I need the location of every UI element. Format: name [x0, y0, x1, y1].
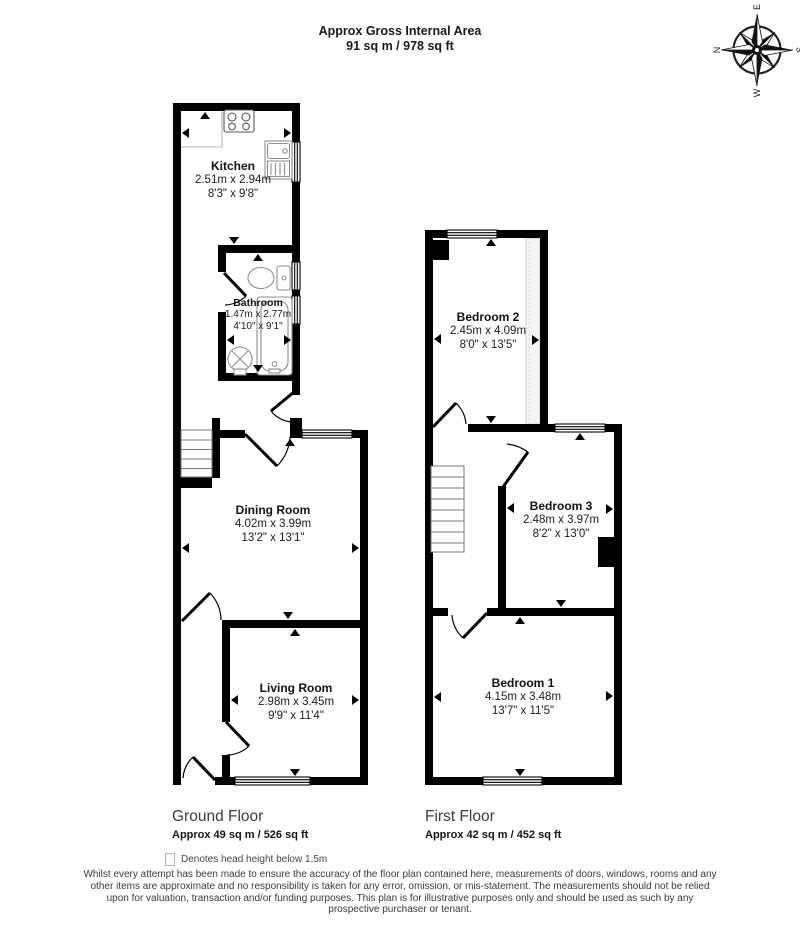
- hob-icon: [224, 110, 254, 132]
- first-floor-title: First Floor: [425, 808, 495, 826]
- room-name: Bedroom 1: [485, 676, 561, 690]
- room-imperial: 8'2" x 13'0": [523, 527, 599, 541]
- bedroom1-window: [483, 777, 542, 785]
- room-imperial: 8'0" x 13'5": [450, 338, 526, 352]
- room-metric: 2.51m x 2.94m: [195, 173, 271, 187]
- head-height-legend: Denotes head height below 1.5m: [165, 853, 327, 866]
- dining-room-window: [302, 430, 352, 438]
- room-metric: 2.98m x 3.45m: [258, 695, 334, 709]
- compass-north-label: N: [712, 47, 722, 54]
- room-metric: 2.48m x 3.97m: [523, 513, 599, 527]
- bedroom2-chimney: [433, 240, 449, 260]
- first-floor-stairs: [431, 466, 464, 552]
- bedroom1-door: [452, 613, 487, 638]
- room-imperial: 13'7" x 11'5": [485, 704, 561, 718]
- ground-floor-area: Approx 49 sq m / 526 sq ft: [172, 829, 308, 841]
- room-label-bedroom-3: Bedroom 3 2.48m x 3.97m 8'2" x 13'0": [523, 499, 599, 541]
- living-room-window: [235, 777, 310, 785]
- compass-south-label: S: [795, 47, 800, 53]
- ground-floor-title: Ground Floor: [172, 808, 263, 826]
- room-metric: 1.47m x 2.77m: [225, 309, 291, 321]
- bedroom2-window: [447, 230, 497, 238]
- floorplan-page: Approx Gross Internal Area 91 sq m / 978…: [0, 0, 800, 927]
- hall-dining-door: [182, 593, 221, 621]
- ground-floor-stairs: [181, 430, 212, 477]
- bedroom3-window: [555, 424, 605, 432]
- room-label-kitchen: Kitchen 2.51m x 2.94m 8'3" x 9'8": [195, 159, 271, 201]
- basin-icon: [228, 347, 252, 375]
- room-label-living-room: Living Room 2.98m x 3.45m 9'9" x 11'4": [258, 681, 334, 723]
- room-label-bedroom-2: Bedroom 2 2.45m x 4.09m 8'0" x 13'5": [450, 310, 526, 352]
- compass-west-label: W: [752, 88, 762, 97]
- disclaimer-text: Whilst every attempt has been made to en…: [80, 869, 720, 916]
- room-label-dining-room: Dining Room 4.02m x 3.99m 13'2" x 13'1": [235, 503, 311, 545]
- dining-room-door: [245, 434, 290, 466]
- room-imperial: 8'3" x 9'8": [195, 187, 271, 201]
- room-name: Bathroom: [225, 297, 291, 309]
- compass-east-label: E: [752, 4, 762, 10]
- living-room-door: [226, 722, 249, 755]
- head-height-legend-text: Denotes head height below 1.5m: [181, 854, 327, 865]
- toilet-icon: [248, 266, 290, 290]
- head-height-swatch-icon: [165, 853, 175, 866]
- room-metric: 4.02m x 3.99m: [235, 517, 311, 531]
- front-door: [183, 757, 215, 780]
- bedroom2-door: [433, 403, 466, 427]
- room-metric: 4.15m x 3.48m: [485, 690, 561, 704]
- landing-door: [271, 392, 294, 422]
- bedroom3-chimney: [598, 537, 614, 567]
- room-name: Bedroom 2: [450, 310, 526, 324]
- bedroom3-door: [503, 444, 528, 487]
- room-imperial: 9'9" x 11'4": [258, 709, 334, 723]
- compass-rose-icon: N E S W: [712, 4, 800, 97]
- room-name: Bedroom 3: [523, 499, 599, 513]
- floorplan-drawing: N E S W: [0, 0, 800, 927]
- room-label-bedroom-1: Bedroom 1 4.15m x 3.48m 13'7" x 11'5": [485, 676, 561, 718]
- room-name: Kitchen: [195, 159, 271, 173]
- room-name: Living Room: [258, 681, 334, 695]
- kitchen-window: [292, 142, 300, 182]
- room-name: Dining Room: [235, 503, 311, 517]
- room-metric: 2.45m x 4.09m: [450, 324, 526, 338]
- bathroom-window-upper: [292, 262, 300, 290]
- room-label-bathroom: Bathroom 1.47m x 2.77m 4'10" x 9'1": [225, 297, 291, 333]
- first-floor-area: Approx 42 sq m / 452 sq ft: [425, 829, 561, 841]
- room-imperial: 13'2" x 13'1": [235, 531, 311, 545]
- head-height-area: [526, 238, 540, 424]
- bathroom-window-lower: [292, 296, 300, 324]
- room-imperial: 4'10" x 9'1": [225, 321, 291, 333]
